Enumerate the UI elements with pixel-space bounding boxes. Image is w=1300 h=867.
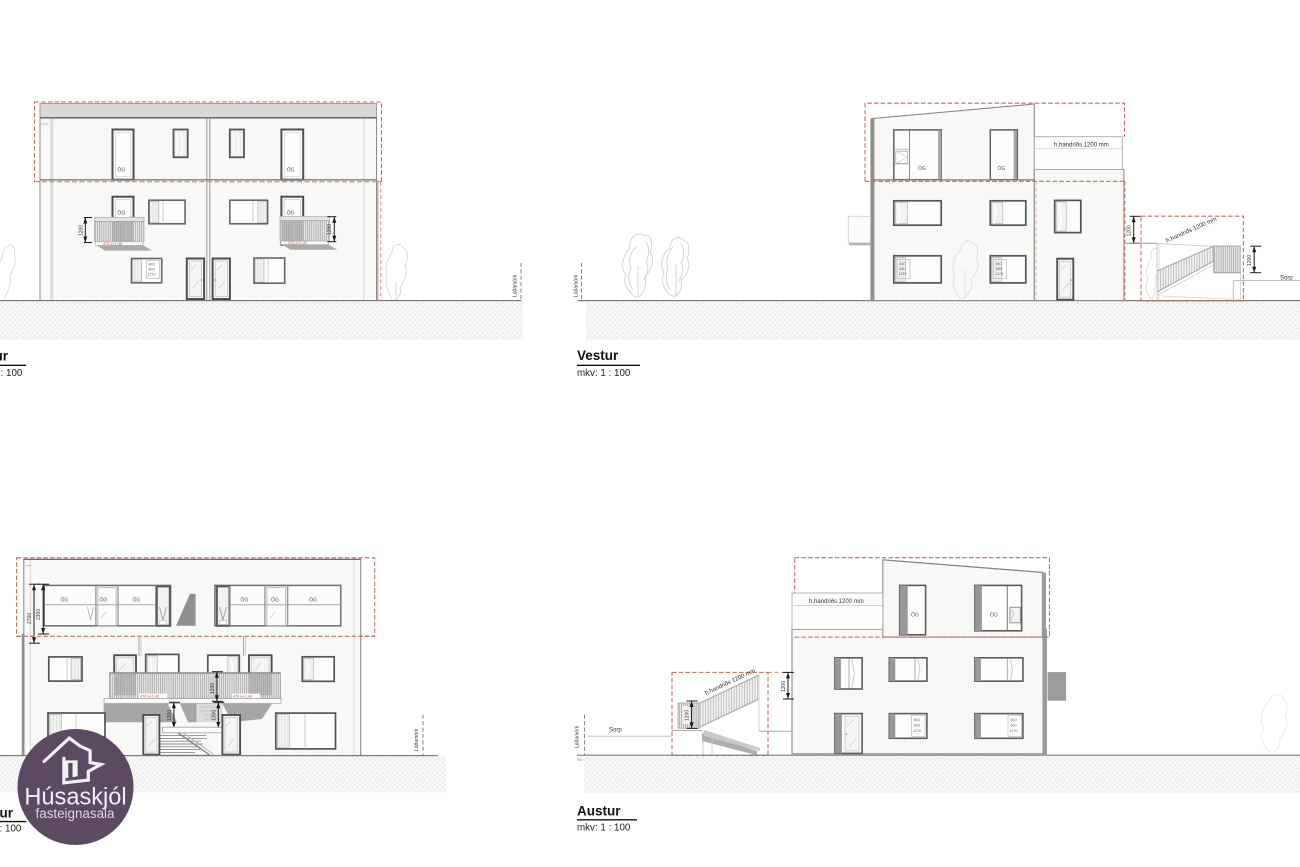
svg-text:800: 800: [900, 267, 906, 271]
svg-text:ÖG: ÖG: [118, 167, 126, 174]
svg-text:Sorp: Sorp: [609, 728, 622, 734]
svg-text:mkv: 1 : 100: mkv: 1 : 100: [577, 368, 631, 379]
svg-text:600: 600: [1011, 724, 1017, 728]
svg-text:470 ≥+1,40: 470 ≥+1,40: [103, 242, 122, 246]
svg-text:ÖG: ÖG: [998, 165, 1006, 172]
svg-text:1200: 1200: [685, 710, 691, 721]
svg-text:800: 800: [996, 267, 1002, 271]
svg-text:ÖG: ÖG: [309, 597, 317, 604]
svg-text:1270: 1270: [995, 272, 1003, 276]
svg-text:1200: 1200: [1247, 255, 1253, 266]
svg-text:mkv: 1 : 100: mkv: 1 : 100: [0, 823, 22, 834]
svg-text:470 ≥+1,40: 470 ≥+1,40: [140, 694, 159, 698]
svg-text:ÖG: ÖG: [287, 167, 295, 174]
svg-text:1270: 1270: [148, 273, 156, 277]
svg-text:ÖG: ÖG: [287, 210, 295, 217]
svg-text:Lóðamörk: Lóðamörk: [573, 274, 580, 297]
svg-text:Lóðamörk: Lóðamörk: [413, 728, 420, 751]
svg-text:fasteignasala: fasteignasala: [36, 806, 115, 821]
svg-text:h.handriðs 1200 mm: h.handriðs 1200 mm: [1054, 141, 1109, 148]
svg-text:Norður: Norður: [0, 806, 14, 821]
svg-text:2700: 2700: [27, 613, 33, 624]
svg-text:Lóðamörk: Lóðamörk: [512, 274, 519, 297]
svg-text:mkv: 1 : 100: mkv: 1 : 100: [577, 822, 631, 833]
svg-text:1200: 1200: [1127, 225, 1133, 236]
svg-text:BIO: BIO: [1011, 718, 1017, 722]
svg-text:1200: 1200: [327, 224, 333, 235]
svg-text:1200: 1200: [79, 225, 85, 236]
svg-text:Vestur: Vestur: [577, 348, 619, 363]
svg-text:800: 800: [149, 268, 155, 272]
svg-text:1270: 1270: [1010, 729, 1018, 733]
svg-text:BIO: BIO: [914, 718, 920, 722]
svg-text:1300: 1300: [167, 710, 173, 721]
svg-text:mkv: 1 : 100: mkv: 1 : 100: [0, 368, 23, 379]
svg-text:1270: 1270: [899, 272, 907, 276]
svg-text:600: 600: [914, 724, 920, 728]
svg-text:470 ≥+1,40: 470 ≥+1,40: [233, 694, 252, 698]
svg-text:1300: 1300: [781, 681, 787, 692]
svg-text:BIO: BIO: [900, 262, 906, 266]
svg-text:ÖG: ÖG: [911, 612, 919, 619]
svg-text:ÖG: ÖG: [118, 210, 126, 217]
svg-text:Lóðamörk: Lóðamörk: [574, 725, 581, 748]
svg-text:ÖG: ÖG: [241, 597, 249, 604]
svg-text:1300: 1300: [211, 710, 217, 721]
svg-text:ÖG: ÖG: [133, 597, 141, 604]
svg-text:ÖG: ÖG: [918, 165, 926, 172]
svg-text:BIO: BIO: [996, 262, 1002, 266]
svg-text:ÖG: ÖG: [100, 597, 108, 604]
svg-text:470 ≥+1,40: 470 ≥+1,40: [288, 241, 307, 245]
svg-text:ÖG: ÖG: [271, 597, 279, 604]
svg-text:ÖG: ÖG: [990, 612, 998, 619]
svg-text:2300: 2300: [36, 609, 42, 620]
svg-text:h.handriðs 1200 mm: h.handriðs 1200 mm: [809, 598, 864, 605]
svg-text:1200: 1200: [210, 683, 216, 694]
svg-text:Austur: Austur: [577, 804, 621, 819]
svg-text:Suður: Suður: [0, 349, 9, 364]
svg-text:BIO: BIO: [149, 263, 155, 267]
svg-text:ÖG: ÖG: [61, 597, 69, 604]
svg-text:1270: 1270: [913, 729, 921, 733]
